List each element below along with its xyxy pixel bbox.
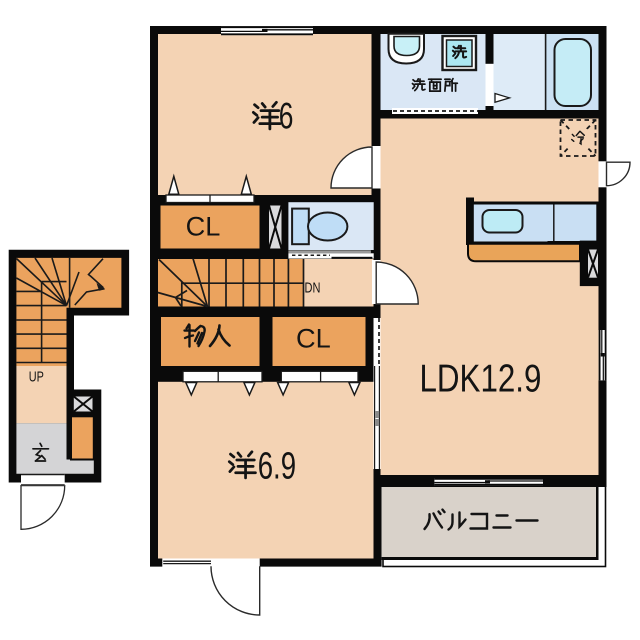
svg-text:6.9: 6.9 [258,445,296,487]
svg-text:6: 6 [279,95,294,136]
svg-text:DN: DN [305,279,321,296]
svg-text:CL: CL [186,211,221,242]
svg-text:UP: UP [29,368,44,385]
svg-text:LDK12.9: LDK12.9 [420,357,542,400]
svg-text:CL: CL [296,323,331,354]
